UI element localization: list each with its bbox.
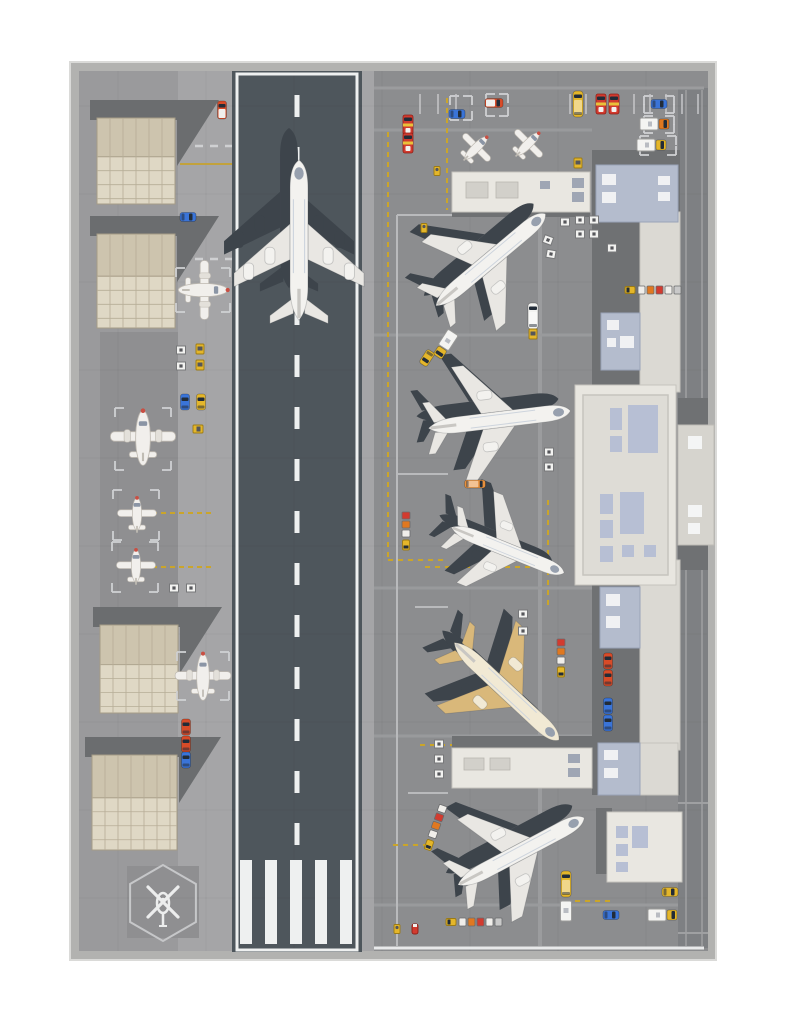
vehicle-car [604,698,613,714]
vehicle-box [561,218,570,226]
vehicle-pump [421,224,427,233]
concourse-plate [452,736,592,748]
vehicle-cart [574,158,582,168]
vehicle-car [662,888,678,897]
vehicle-car [181,394,190,410]
airport-rug-product-image [0,0,788,1024]
vehicle-car [180,213,196,222]
vehicle-box [608,244,617,252]
vehicle-bus [528,303,538,329]
vehicle-car [604,715,613,731]
vehicle-cart [529,329,537,339]
vehicle-box [177,346,186,354]
concourse-walkway [640,212,680,392]
vehicle-train [402,512,410,550]
vehicle-box [435,770,444,778]
vehicle-cart [196,344,204,354]
vehicle-pump [394,925,400,934]
vehicle-train [557,639,565,677]
vehicle-car [604,670,613,686]
vehicle-trucktrailer [640,118,669,130]
vehicle-cart [196,360,204,370]
vehicle-box [576,230,585,238]
vehicle-trucktrailer [637,139,666,151]
concourse-plate [678,545,708,570]
vehicle-box [590,216,599,224]
vehicle-box [590,230,599,238]
vehicle-car [651,100,667,109]
vehicle-box [545,448,554,456]
gate-module [600,587,640,648]
gate-module [596,165,678,222]
concourse-walkway [638,743,678,795]
vehicle-box [519,610,528,618]
vehicle-pump [434,167,440,176]
vehicle-firetruck [609,94,619,114]
vehicle-trucktrailer [648,909,677,921]
airport-playmat-graphic [0,0,788,1024]
vehicle-cart [193,425,203,433]
vehicle-firetruck [596,94,606,114]
vehicle-box [545,463,554,471]
vehicle-car [182,719,191,735]
vehicle-van [218,101,227,119]
concourse-plate [678,398,708,425]
vehicle-bus [465,480,486,488]
vehicle-car [182,736,191,752]
vehicle-bus [573,91,583,117]
vehicle-box [576,216,585,224]
gate-module [601,313,640,370]
runway-threshold-stripe [340,860,352,944]
taxi-strip [178,71,232,951]
vehicle-box [435,755,444,763]
vehicle-car [182,752,191,768]
concourse-walkway [640,560,680,750]
vehicle-box [519,627,528,635]
vehicle-car [449,110,465,119]
main-terminal-building [575,385,676,585]
vehicle-car [603,911,619,920]
vehicle-box [546,249,556,258]
runway-threshold-stripe [290,860,302,944]
runway-threshold-stripe [240,860,252,944]
vehicle-box [177,362,186,370]
terminal-building-south [452,748,592,788]
vehicle-van [485,99,503,108]
vehicle-box [170,584,179,592]
runway-shoulder [362,71,374,951]
cargo-building [607,812,682,882]
runway-threshold-stripe [265,860,277,944]
vehicle-bus [561,871,571,897]
vehicle-car [197,394,206,410]
vehicle-firetruck [403,133,413,153]
runway-threshold-stripe [315,860,327,944]
vehicle-box [435,740,444,748]
vehicle-trailer [561,901,572,921]
vehicle-hydrant [412,924,418,934]
jet-bridge-extension [678,425,714,545]
vehicle-firetruck [403,115,413,135]
gate-module [598,743,640,795]
vehicle-box [187,584,196,592]
vehicle-car [604,653,613,669]
